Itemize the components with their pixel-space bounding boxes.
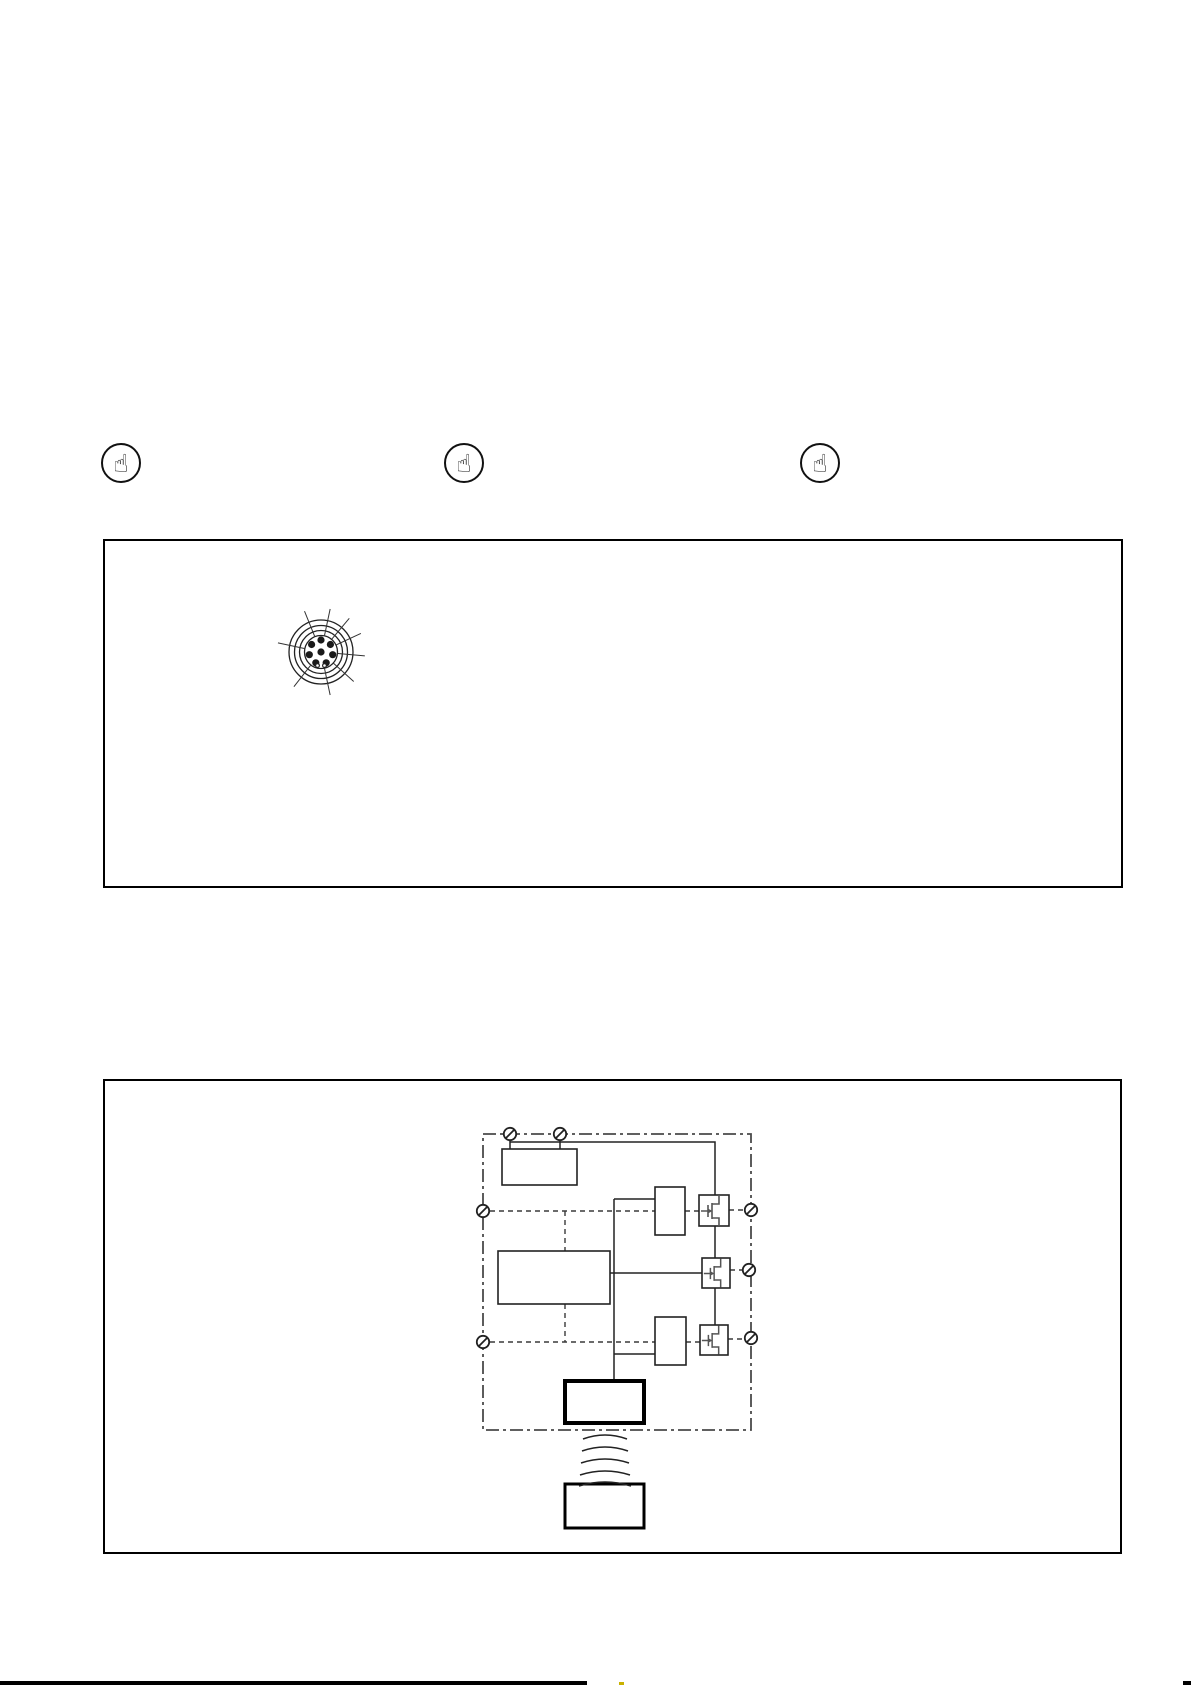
control-box xyxy=(498,1251,610,1304)
connector-pin xyxy=(317,648,324,655)
pointing-hand-glyph: ☝ xyxy=(456,451,471,476)
sound-wave-arc xyxy=(582,1447,628,1451)
transducer-box xyxy=(565,1484,644,1528)
terminal-symbol xyxy=(477,1336,489,1348)
pointing-hand-glyph: ☝ xyxy=(812,451,827,476)
connector-pin xyxy=(317,636,324,643)
terminal-symbol xyxy=(477,1205,489,1217)
terminal-symbol xyxy=(745,1332,757,1344)
terminal-symbol xyxy=(554,1128,566,1140)
terminal-symbol xyxy=(745,1204,757,1216)
connector-pinout-figure-frame xyxy=(103,539,1123,888)
connector-pin xyxy=(306,651,313,658)
transceiver-block-diagram xyxy=(105,1081,1120,1552)
connector-face xyxy=(278,609,365,695)
note-hand-icon: ☝ xyxy=(800,443,840,483)
document-page: ☝ ☝ ☝ xyxy=(0,0,1191,1685)
note-hand-icon: ☝ xyxy=(444,443,484,483)
sound-wave-arcs xyxy=(579,1435,631,1486)
connector-pin xyxy=(308,641,315,648)
pin-leader-line xyxy=(294,665,311,686)
footer-right-mark xyxy=(1183,1681,1191,1685)
sound-wave-arc xyxy=(580,1471,630,1475)
connector-pin xyxy=(329,651,336,658)
power-supply-box xyxy=(502,1149,577,1185)
note-hand-icon: ☝ xyxy=(101,443,141,483)
sound-wave-arc xyxy=(583,1435,627,1439)
driver-box-lower xyxy=(655,1317,686,1365)
driver-box-upper xyxy=(655,1187,685,1235)
keyway-hole xyxy=(316,664,320,668)
terminal-symbol xyxy=(504,1128,516,1140)
footer-black-bar xyxy=(0,1681,587,1685)
connector-pin xyxy=(327,641,334,648)
terminal-symbol xyxy=(743,1264,755,1276)
pointing-hand-glyph: ☝ xyxy=(113,451,128,476)
sound-wave-arc xyxy=(581,1459,629,1463)
matching-box xyxy=(565,1381,644,1423)
block-diagram-figure-frame xyxy=(103,1079,1122,1554)
connector-pinout-drawing xyxy=(105,541,1121,886)
keyway-hole xyxy=(323,664,327,668)
